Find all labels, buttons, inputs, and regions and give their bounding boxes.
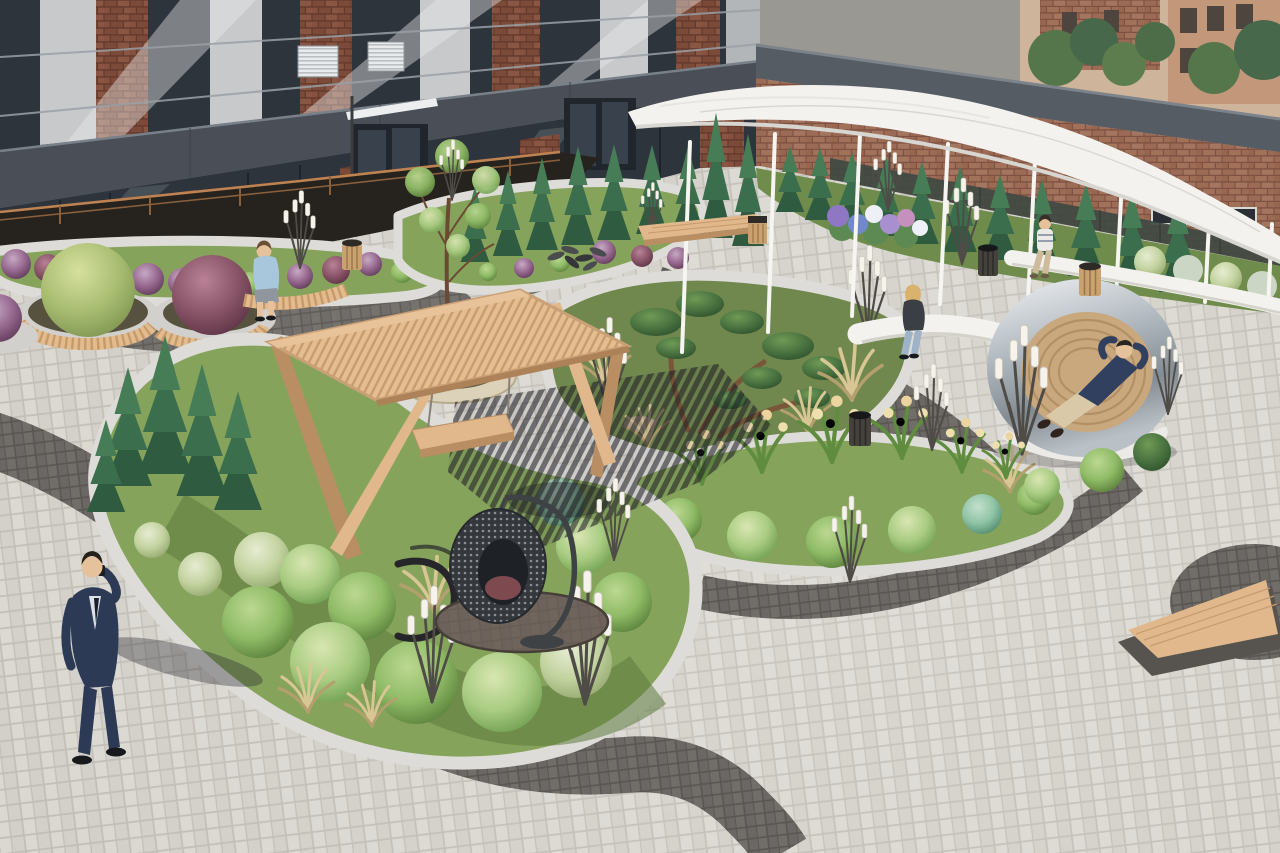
litter-bin[interactable] <box>342 239 362 270</box>
courtyard-scene <box>0 0 1280 853</box>
shrub-mound <box>1024 468 1060 504</box>
litter-bin-square[interactable] <box>748 216 767 244</box>
courtyard-render <box>0 0 1280 853</box>
ac-grille <box>368 42 404 71</box>
burgundy-shrub <box>172 255 252 335</box>
litter-bin[interactable] <box>1079 262 1101 296</box>
litter-bin[interactable] <box>849 411 871 446</box>
pine-mound <box>1133 433 1171 471</box>
ac-grille <box>298 46 338 77</box>
green-shrub <box>41 243 135 337</box>
litter-bin[interactable] <box>978 244 998 276</box>
shrub-mound <box>1080 448 1124 492</box>
